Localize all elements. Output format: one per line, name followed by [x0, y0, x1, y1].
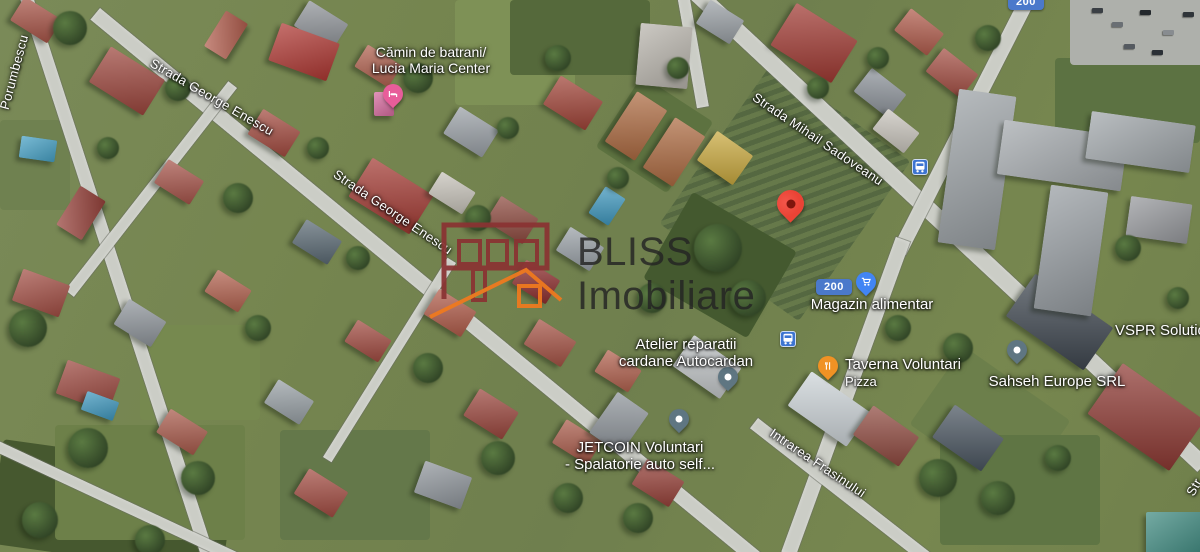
building [523, 319, 576, 368]
tree [465, 205, 491, 231]
satellite-map[interactable]: Strada George Enescu Strada George Enesc… [0, 0, 1200, 552]
lodging-pin[interactable] [383, 84, 403, 104]
parked-car [1112, 22, 1123, 27]
place-label-line2: Lucia Maria Center [372, 60, 490, 76]
tree [553, 483, 583, 513]
place-label-vspr-solutions[interactable]: VSPR Solutio [1115, 322, 1200, 339]
street-label-porumbescu: Porumbescu [0, 33, 31, 111]
parked-car [1152, 50, 1163, 55]
tree [346, 246, 370, 270]
grocery-pin[interactable] [856, 272, 876, 292]
terrain-patch [510, 0, 650, 75]
tree [245, 315, 271, 341]
building [204, 10, 248, 59]
pin-dot [1014, 347, 1021, 354]
tree [807, 77, 829, 99]
property-marker-pin[interactable] [777, 190, 804, 217]
tree [9, 309, 47, 347]
pin-dot [676, 416, 683, 423]
building [204, 269, 252, 312]
tree [1045, 445, 1071, 471]
place-label-atelier-autocardan[interactable]: Atelier reparatii cardane Autocardan [619, 336, 753, 370]
building [853, 68, 906, 119]
bus-icon [913, 160, 927, 174]
tree [867, 47, 889, 69]
building [485, 196, 538, 245]
street-label-str-partial: Str [1183, 476, 1200, 499]
tree [223, 183, 253, 213]
place-label-line1: JETCOIN Voluntari [565, 439, 715, 456]
tree [497, 117, 519, 139]
place-label-line2: Pizza [845, 373, 961, 390]
tree [667, 57, 689, 79]
bus-icon [781, 332, 795, 346]
tree [1167, 287, 1189, 309]
building [1034, 185, 1109, 317]
place-label-taverna-voluntari[interactable]: Taverna Voluntari Pizza [845, 356, 961, 390]
terrain-patch [1070, 0, 1200, 65]
parked-car [1163, 30, 1174, 35]
place-pin-jetcoin[interactable] [669, 409, 689, 429]
tree [181, 461, 215, 495]
place-label-line2: - Spalatorie auto self... [565, 456, 715, 473]
parked-car [1092, 8, 1103, 13]
tree [307, 137, 329, 159]
place-label-line1: Cămin de batrani/ [372, 44, 490, 60]
parked-car [1140, 10, 1151, 15]
bus-route-badge-200-top[interactable]: 200 [1008, 0, 1044, 10]
place-label-line2: cardane Autocardan [619, 353, 753, 370]
bus-route-badge-200[interactable]: 200 [816, 279, 852, 295]
place-label-sahseh-europe[interactable]: Sahseh Europe SRL [989, 373, 1126, 390]
building [1146, 512, 1200, 552]
place-label-line1: Atelier reparatii [619, 336, 753, 353]
tree [885, 315, 911, 341]
place-label-line1: Sahseh Europe SRL [989, 373, 1126, 390]
tree [1115, 235, 1141, 261]
pin-dot [786, 199, 795, 208]
place-label-magazin-alimentar[interactable]: Magazin alimentar [811, 296, 934, 313]
building [443, 106, 499, 158]
tree [623, 503, 653, 533]
building [292, 219, 342, 265]
tree [481, 441, 515, 475]
building [894, 8, 944, 56]
bed-icon [388, 89, 399, 99]
tree [919, 459, 957, 497]
place-label-line1: Taverna Voluntari [845, 356, 961, 373]
place-label-line1: Magazin alimentar [811, 296, 934, 313]
building [264, 379, 314, 425]
shopping-cart-icon [861, 277, 872, 287]
pin-dot [725, 374, 732, 381]
street-label-george-enescu-1: Strada George Enescu [148, 55, 277, 138]
tree [637, 283, 667, 313]
tree [413, 353, 443, 383]
tree [607, 167, 629, 189]
bus-stop-icon[interactable] [912, 159, 928, 175]
building [463, 388, 519, 440]
tree [975, 25, 1001, 51]
tree [694, 224, 742, 272]
bus-stop-icon[interactable] [780, 331, 796, 347]
terrain-patch [0, 120, 70, 210]
building [635, 23, 692, 89]
parked-car [1124, 44, 1135, 49]
place-pin-sahseh[interactable] [1007, 340, 1027, 360]
place-label-line1: VSPR Solutio [1115, 322, 1200, 339]
tree [53, 11, 87, 45]
place-label-camin-de-batrani[interactable]: Cămin de batrani/ Lucia Maria Center [372, 44, 490, 76]
fork-knife-icon [823, 361, 833, 371]
tree [981, 481, 1015, 515]
tree [730, 280, 766, 316]
building [556, 227, 605, 272]
tree [545, 45, 571, 71]
tree [135, 525, 165, 552]
restaurant-pin[interactable] [818, 356, 838, 376]
tree [97, 137, 119, 159]
building [588, 186, 626, 226]
tree [22, 502, 58, 538]
building [512, 260, 561, 305]
parked-car [1183, 12, 1194, 17]
place-label-jetcoin-voluntari[interactable]: JETCOIN Voluntari - Spalatorie auto self… [565, 439, 715, 473]
tree [68, 428, 108, 468]
place-pin-atelier[interactable] [718, 367, 738, 387]
